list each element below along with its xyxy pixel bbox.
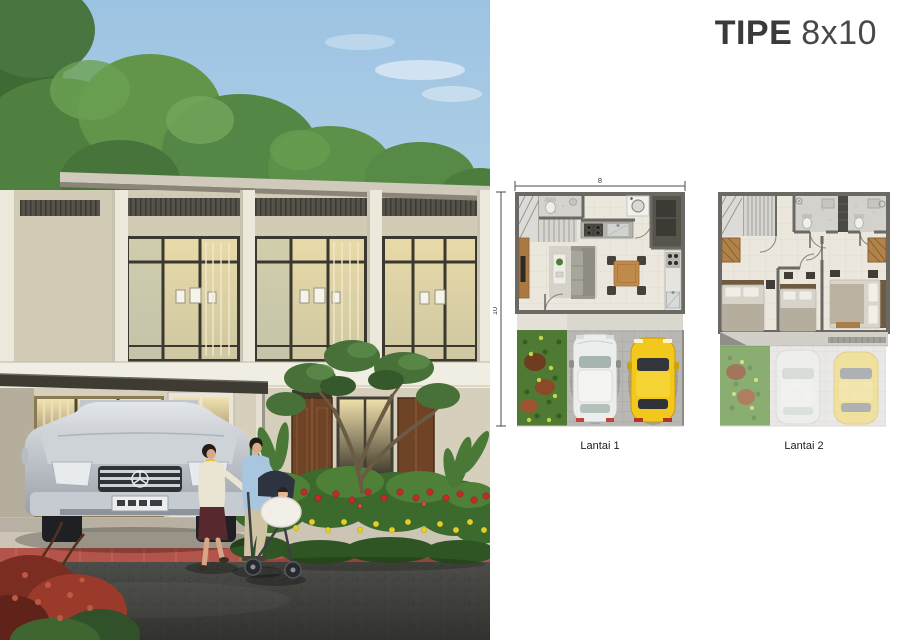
house-illustration <box>0 0 490 640</box>
title-bold: TIPE <box>715 14 793 52</box>
plan-label-lantai1: Lantai 1 <box>515 440 685 452</box>
yellow-car <box>627 338 679 422</box>
floor-plan-lantai1: 8 10 <box>493 174 689 474</box>
plan-label-lantai2: Lantai 2 <box>718 440 890 452</box>
bathroom <box>539 196 583 218</box>
wardrobe-left <box>722 238 740 262</box>
kitchen-counter-right <box>665 250 681 312</box>
ghosted-ground-level <box>720 346 886 426</box>
shaft <box>838 196 848 232</box>
wardrobe-right <box>868 238 886 262</box>
dim-height-label: 10 <box>493 307 499 315</box>
content-pane: TIPE8x10 <box>490 0 902 640</box>
second-floor-windows <box>126 236 478 362</box>
brochure-page: TIPE8x10 <box>0 0 902 640</box>
page-title: TIPE8x10 <box>715 16 877 50</box>
vent-slats <box>20 200 100 216</box>
pantry <box>651 196 683 248</box>
tv-console <box>519 238 529 298</box>
living-room <box>549 246 597 299</box>
laundry-area <box>627 196 649 216</box>
title-light: 8x10 <box>801 14 877 52</box>
floor-plan-lantai2: Lantai 2 <box>716 174 894 474</box>
balcony-strip <box>720 332 888 346</box>
floor-plan-2-drawing <box>716 174 894 474</box>
white-car <box>569 334 621 422</box>
house-photo <box>0 0 490 640</box>
floor-plan-1-drawing: 8 10 <box>493 174 689 474</box>
dim-width-label: 8 <box>598 176 602 185</box>
garden <box>517 330 567 426</box>
license-plate <box>112 496 168 511</box>
